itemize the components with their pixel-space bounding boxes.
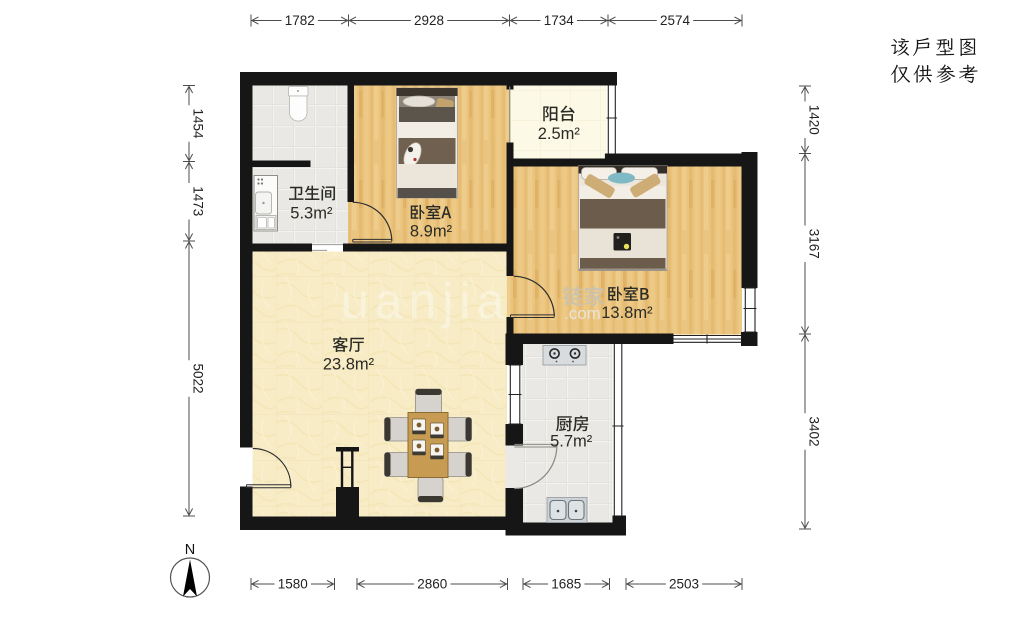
svg-text:3402: 3402 (807, 416, 822, 446)
svg-text:2574: 2574 (660, 13, 691, 28)
svg-text:5.3m²: 5.3m² (290, 204, 333, 222)
svg-text:2860: 2860 (417, 577, 447, 592)
svg-text:8.9m²: 8.9m² (410, 222, 453, 240)
svg-text:N: N (185, 542, 195, 558)
svg-text:1420: 1420 (807, 105, 822, 135)
svg-text:1473: 1473 (191, 186, 206, 216)
svg-text:1685: 1685 (551, 577, 581, 592)
svg-text:1734: 1734 (544, 13, 575, 28)
svg-text:2503: 2503 (669, 577, 699, 592)
svg-text:2.5m²: 2.5m² (538, 125, 581, 143)
svg-text:13.8m²: 13.8m² (601, 304, 653, 322)
svg-text:.com: .com (564, 304, 601, 323)
svg-text:uanjia: uanjia (341, 273, 510, 329)
svg-text:3167: 3167 (807, 229, 822, 259)
svg-text:5022: 5022 (191, 363, 206, 393)
svg-text:1782: 1782 (285, 13, 315, 28)
svg-text:1454: 1454 (191, 108, 206, 139)
svg-text:1580: 1580 (278, 577, 308, 592)
svg-text:5.7m²: 5.7m² (550, 433, 593, 451)
svg-text:23.8m²: 23.8m² (323, 356, 375, 374)
svg-text:2928: 2928 (414, 13, 444, 28)
